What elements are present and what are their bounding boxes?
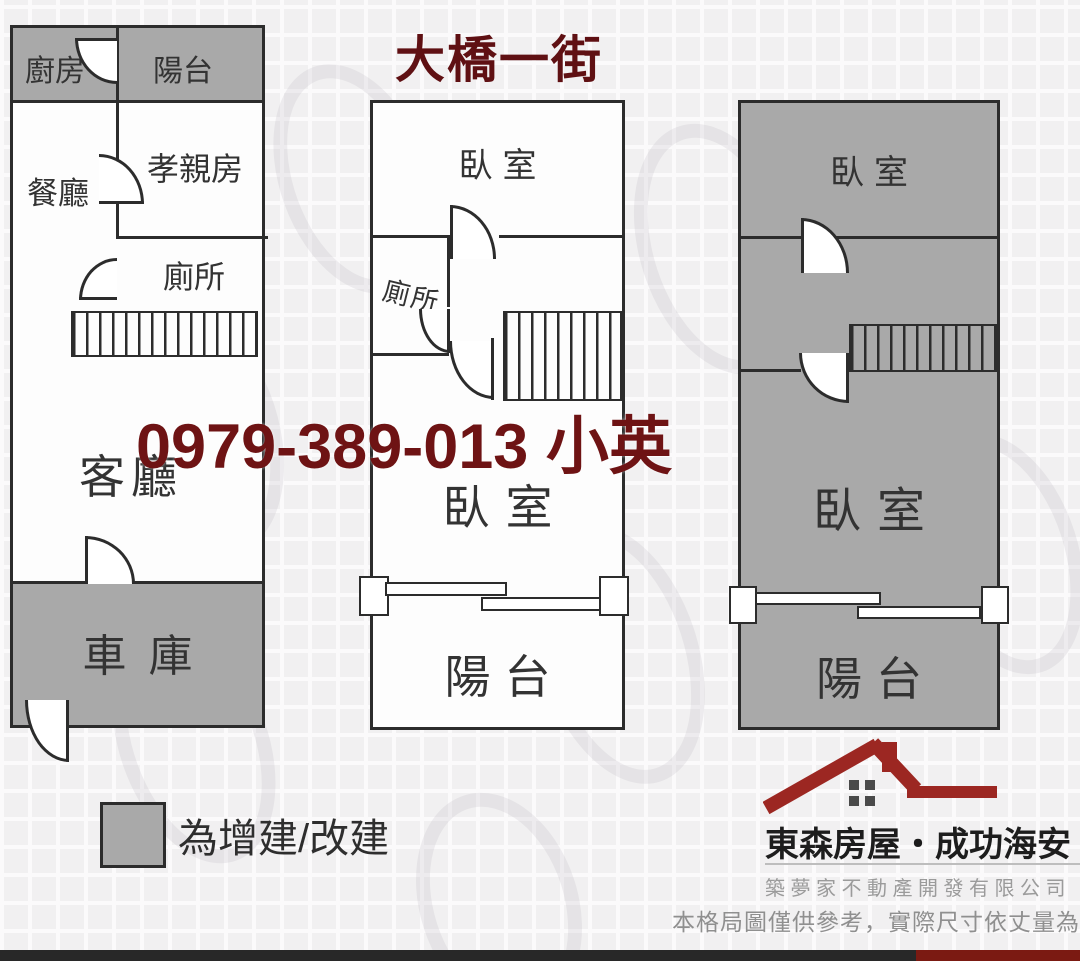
bedroom-wall-f3: [741, 236, 997, 239]
living-garage-door: [85, 536, 135, 584]
toilet-bottom-wall-f2: [373, 353, 449, 356]
bedroom-wall-right-f2: [499, 235, 622, 238]
background-watermark: [389, 771, 610, 961]
house-roof-logo-icon: [763, 736, 1003, 818]
floorplan-canvas: 大橋一街 廚房 陽台 餐廳 孝親房 廁所 客廳 車庫 臥室: [0, 0, 1080, 961]
stairs-f3: [849, 324, 997, 372]
room-label-bedroom-top-f3: 臥室: [741, 145, 997, 194]
window-panel-upper-f3: [755, 592, 881, 605]
room-label-bedroom-top-f2: 臥室: [373, 138, 622, 187]
bedroom-door-f3: [801, 218, 849, 273]
legend-label: 為增建/改建: [178, 806, 389, 864]
legend-gray-swatch: [100, 802, 166, 868]
landing-wall-f3: [741, 369, 801, 372]
room-label-parents-room: 孝親房: [147, 144, 243, 190]
toilet-door-f1: [79, 258, 117, 300]
bedroom-door-f2: [450, 205, 496, 259]
bottom-bar: [0, 950, 1080, 961]
garage-entry-door: [25, 700, 69, 762]
room-label-bedroom-f3: 臥室: [741, 471, 997, 541]
first-floor-plan: 廚房 陽台 餐廳 孝親房 廁所 客廳 車庫: [10, 25, 265, 728]
stairs-door-f3: [799, 353, 849, 403]
street-title: 大橋一街: [395, 20, 603, 92]
room-label-balcony-f2: 陽台: [373, 641, 622, 707]
company-name: 築夢家不動產開發有限公司: [765, 872, 1071, 901]
stairs-f1: [71, 311, 258, 357]
toilet-door-f2: [419, 309, 450, 353]
contact-watermark: 0979-389-013 小英: [136, 396, 672, 487]
window-panel-lower-f2: [481, 597, 611, 611]
window-panel-upper-f2: [385, 582, 507, 596]
room-label-toilet-f1: 廁所: [163, 252, 225, 297]
room-label-dining: 餐廳: [27, 168, 89, 213]
brand-name: 東森房屋・成功海安: [765, 817, 1071, 866]
room-label-balcony-f3: 陽台: [741, 643, 997, 709]
third-floor-plan: 臥室 臥室 陽台: [738, 100, 1000, 730]
bottom-bar-red-block: [916, 950, 1080, 961]
room-label-kitchen: 廚房: [25, 46, 85, 90]
bedroom-wall-left-f2: [373, 235, 453, 238]
stairs-door-f2: [449, 341, 494, 399]
parents-room-door: [99, 154, 144, 204]
room-label-balcony-f1: 陽台: [153, 46, 213, 90]
room-label-garage: 車庫: [13, 620, 262, 684]
stairs-f2: [503, 311, 622, 401]
brand-divider: [765, 863, 1080, 865]
disclaimer-text: 本格局圖僅供參考，實際尺寸依丈量為準: [672, 903, 1080, 937]
window-cap-right-f3: [981, 586, 1009, 624]
toilet-wall-f2: [447, 235, 450, 307]
window-cap-right-f2: [599, 576, 629, 616]
toilet-wall-f1: [116, 236, 268, 239]
window-panel-lower-f3: [857, 606, 981, 619]
window-cap-left-f3: [729, 586, 757, 624]
